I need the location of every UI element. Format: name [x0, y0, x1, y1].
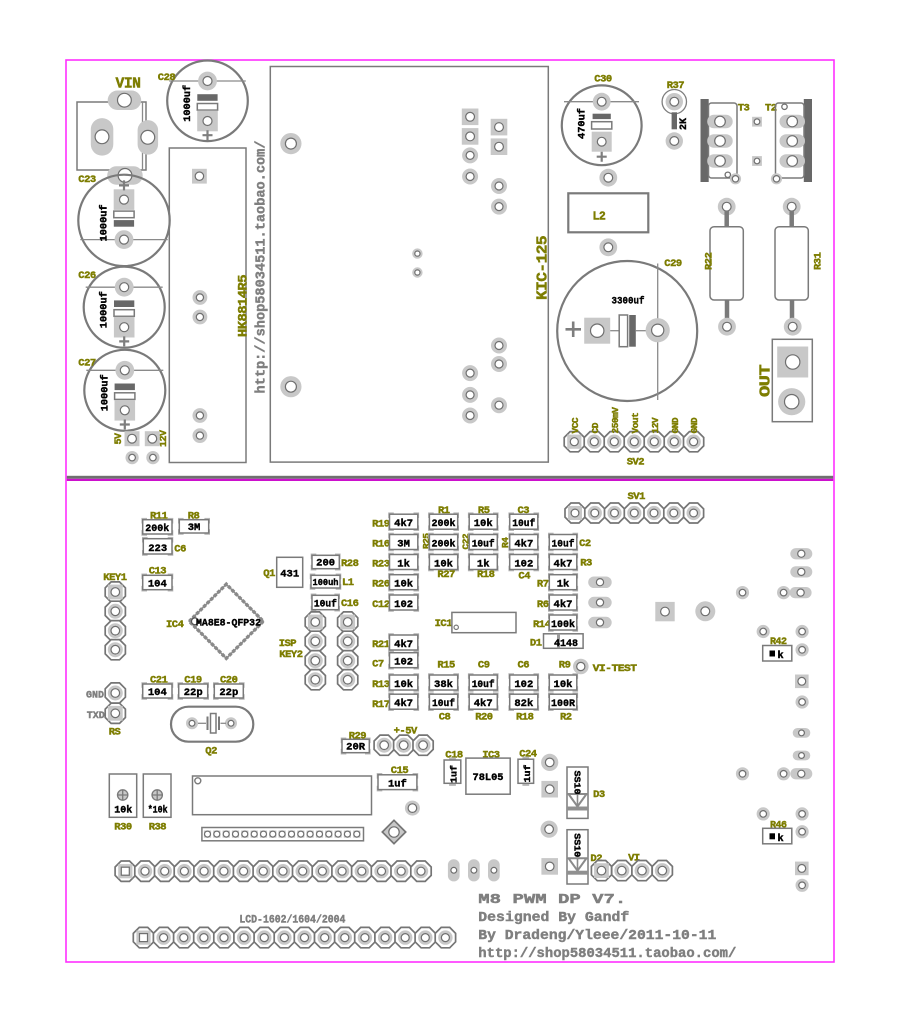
svg-text:R7: R7 — [537, 578, 549, 590]
svg-text:102: 102 — [514, 558, 533, 570]
svg-text:1000uf: 1000uf — [99, 204, 111, 241]
svg-text:R21: R21 — [372, 639, 390, 651]
svg-text:LCD-1602/1604/2004: LCD-1602/1604/2004 — [239, 914, 345, 926]
svg-text:D3: D3 — [593, 789, 605, 801]
svg-text:R30: R30 — [114, 821, 132, 833]
svg-text:R6: R6 — [537, 599, 549, 611]
svg-text:10k: 10k — [394, 679, 413, 691]
svg-text:*10k: *10k — [148, 805, 168, 817]
svg-text:R17: R17 — [372, 699, 390, 711]
svg-text:4k7: 4k7 — [554, 558, 573, 570]
svg-text:R13: R13 — [372, 679, 390, 691]
svg-text:C9: C9 — [478, 659, 490, 671]
svg-text:GND: GND — [670, 417, 681, 433]
svg-text:20R: 20R — [346, 742, 366, 754]
svg-text:GND: GND — [689, 417, 700, 433]
svg-text:IC1: IC1 — [435, 618, 453, 630]
svg-text:R38: R38 — [149, 821, 167, 833]
svg-text:1k: 1k — [397, 558, 410, 570]
svg-text:22p: 22p — [184, 687, 203, 699]
svg-text:Vout: Vout — [630, 413, 641, 434]
svg-text:Designed By Gandf: Designed By Gandf — [478, 910, 629, 926]
svg-text:102: 102 — [394, 657, 413, 669]
svg-text:C16: C16 — [341, 598, 359, 610]
svg-text:R9: R9 — [559, 659, 571, 671]
svg-text:10k: 10k — [114, 805, 132, 817]
svg-text:R19: R19 — [372, 519, 390, 531]
svg-text:200k: 200k — [432, 538, 456, 550]
svg-text:4k7: 4k7 — [394, 518, 413, 530]
svg-text:1uf: 1uf — [388, 778, 407, 790]
svg-text:R3: R3 — [580, 557, 592, 569]
svg-text:4k7: 4k7 — [474, 698, 493, 710]
svg-text:VI-TEST: VI-TEST — [593, 663, 637, 675]
svg-text:R23: R23 — [372, 559, 390, 571]
svg-text:MA8E8-QFP32: MA8E8-QFP32 — [196, 618, 261, 630]
svg-text:KIC-125: KIC-125 — [536, 236, 552, 300]
svg-text:R27: R27 — [437, 569, 455, 581]
svg-text:12V: 12V — [650, 417, 661, 433]
svg-text:R18: R18 — [477, 569, 495, 581]
svg-text:C28: C28 — [158, 72, 176, 84]
svg-text:10uf: 10uf — [512, 518, 535, 530]
svg-text:3300uf: 3300uf — [612, 295, 645, 307]
svg-text:R28: R28 — [341, 558, 359, 570]
svg-text:L2: L2 — [593, 211, 606, 224]
svg-text:http://shop58034511.taobao.com: http://shop58034511.taobao.com/ — [478, 946, 736, 962]
svg-text:10uf: 10uf — [472, 538, 495, 550]
svg-text:R20: R20 — [475, 711, 493, 723]
svg-text:104: 104 — [148, 687, 167, 699]
svg-text:C7: C7 — [372, 659, 384, 671]
svg-text:431: 431 — [280, 569, 299, 581]
svg-text:SS10: SS10 — [571, 771, 582, 795]
svg-text:Q2: Q2 — [205, 746, 217, 758]
svg-text:C23: C23 — [78, 174, 96, 186]
svg-text:3M: 3M — [397, 538, 410, 550]
svg-text:CD: CD — [590, 422, 601, 433]
svg-text:10k: 10k — [394, 579, 413, 591]
svg-text:k: k — [777, 833, 783, 845]
svg-text:2K: 2K — [679, 118, 690, 130]
svg-text:200k: 200k — [145, 523, 169, 535]
svg-text:KEY2: KEY2 — [279, 649, 302, 661]
svg-text:k: k — [777, 650, 783, 662]
svg-text:http://shop58034511.taobao.com: http://shop58034511.taobao.com/ — [253, 141, 269, 394]
svg-text:100uh: 100uh — [313, 577, 339, 588]
svg-text:10uf: 10uf — [314, 599, 337, 611]
svg-text:78L05: 78L05 — [473, 772, 504, 784]
svg-text:SV1: SV1 — [628, 491, 646, 503]
svg-text:C6: C6 — [518, 659, 530, 671]
svg-text:RS: RS — [109, 727, 121, 739]
svg-text:VCC: VCC — [570, 417, 581, 433]
svg-text:10uf: 10uf — [432, 698, 455, 710]
svg-text:200: 200 — [316, 558, 335, 570]
svg-text:C6: C6 — [174, 544, 186, 556]
svg-text:10k: 10k — [474, 518, 493, 530]
svg-text:R18: R18 — [516, 711, 534, 723]
svg-text:223: 223 — [148, 543, 167, 555]
svg-text:L1: L1 — [342, 577, 354, 589]
svg-text:R14: R14 — [533, 619, 551, 631]
svg-text:D1: D1 — [530, 637, 542, 649]
svg-text:1000uf: 1000uf — [99, 374, 111, 411]
svg-text:C8: C8 — [439, 711, 451, 723]
svg-text:R22: R22 — [704, 252, 716, 270]
svg-text:M8 PWM DP V7.: M8 PWM DP V7. — [478, 892, 626, 908]
svg-text:1uf: 1uf — [448, 765, 459, 783]
svg-text:470uf: 470uf — [577, 108, 589, 139]
svg-text:C12: C12 — [372, 599, 390, 611]
svg-text:R16: R16 — [372, 539, 390, 551]
svg-text:SS10: SS10 — [571, 833, 582, 857]
svg-text:VIN: VIN — [116, 76, 141, 93]
svg-text:100R: 100R — [551, 698, 576, 710]
svg-text:By Dradeng/Yleee/2011-10-11: By Dradeng/Yleee/2011-10-11 — [478, 928, 716, 944]
svg-text:38k: 38k — [434, 679, 453, 691]
svg-text:OUT: OUT — [759, 364, 775, 397]
svg-text:SV2: SV2 — [627, 457, 645, 469]
svg-text:100k: 100k — [551, 619, 575, 631]
svg-text:R26: R26 — [372, 579, 390, 591]
svg-text:C30: C30 — [594, 74, 612, 86]
svg-text:IC4: IC4 — [166, 619, 184, 631]
svg-text:GND: GND — [86, 691, 104, 702]
svg-text:102: 102 — [394, 599, 413, 611]
svg-text:22p: 22p — [219, 687, 238, 699]
svg-text:C27: C27 — [78, 358, 96, 370]
svg-text:1k: 1k — [557, 579, 570, 591]
svg-text:C26: C26 — [78, 270, 96, 282]
svg-text:HK8814R5: HK8814R5 — [237, 275, 251, 337]
svg-text:12V: 12V — [159, 430, 170, 447]
svg-text:250mV: 250mV — [610, 407, 621, 434]
svg-text:1uf: 1uf — [522, 764, 533, 782]
svg-text:T3: T3 — [738, 103, 750, 115]
svg-text:10uf: 10uf — [472, 679, 495, 691]
svg-text:5V: 5V — [114, 433, 125, 445]
svg-text:R2: R2 — [560, 711, 572, 723]
svg-text:4148: 4148 — [554, 638, 578, 650]
svg-text:4k7: 4k7 — [394, 639, 413, 651]
svg-text:4k7: 4k7 — [514, 538, 533, 550]
svg-text:TXD: TXD — [87, 711, 105, 722]
svg-text:R31: R31 — [813, 252, 825, 270]
svg-text:C4: C4 — [518, 570, 530, 582]
svg-text:4k7: 4k7 — [394, 698, 413, 710]
svg-text:102: 102 — [514, 679, 533, 691]
svg-text:1000uf: 1000uf — [99, 291, 111, 328]
svg-text:200k: 200k — [432, 518, 456, 530]
svg-text:R15: R15 — [437, 659, 455, 671]
svg-text:104: 104 — [148, 579, 167, 591]
svg-text:3M: 3M — [188, 522, 201, 534]
svg-text:10k: 10k — [554, 679, 573, 691]
svg-text:4k7: 4k7 — [554, 599, 573, 611]
svg-text:10uf: 10uf — [552, 538, 575, 550]
svg-text:1000uf: 1000uf — [182, 85, 194, 122]
svg-text:82k: 82k — [514, 698, 533, 710]
svg-text:C29: C29 — [664, 258, 682, 270]
svg-text:C2: C2 — [579, 538, 591, 550]
svg-text:Q1: Q1 — [263, 568, 275, 580]
